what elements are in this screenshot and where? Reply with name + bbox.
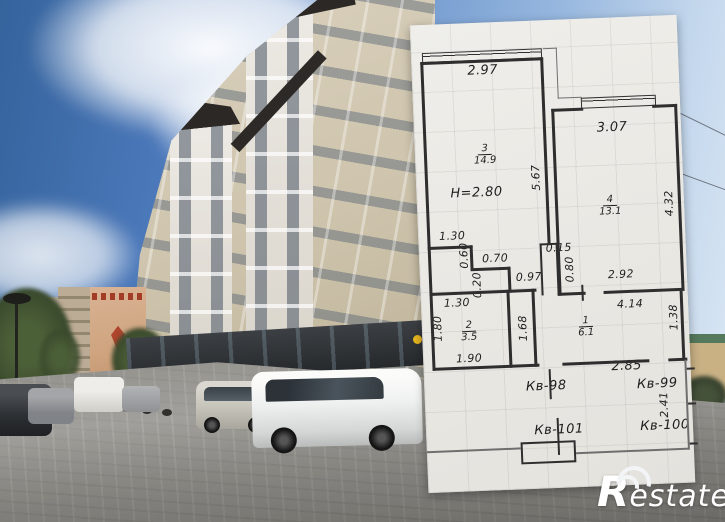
car-windows xyxy=(265,377,384,402)
apartment-label-98: Кв-98 xyxy=(526,378,567,395)
dim-lobby-height: 2.41 xyxy=(657,391,671,418)
room-number: 4 xyxy=(602,194,617,207)
dim-bath-bottom: 1.90 xyxy=(456,351,483,365)
room-label-bath: 2 3.5 xyxy=(460,313,477,345)
wall-segment xyxy=(531,289,537,367)
wall-segment xyxy=(551,108,583,112)
bollard xyxy=(162,409,172,416)
dim-room4-top: 3.07 xyxy=(596,119,627,135)
dim-room3-right: 5.67 xyxy=(529,164,543,191)
shop-sign xyxy=(413,335,422,344)
dim-room4-bottom: 2.92 xyxy=(608,267,635,281)
ceiling-height-label: H=2.80 xyxy=(450,184,503,201)
outline-segment xyxy=(684,360,690,450)
dim-room3-top: 2.97 xyxy=(467,63,498,79)
dim-closet-top: 0.97 xyxy=(516,270,543,284)
outline-segment xyxy=(556,48,559,99)
dim-hall-top: 4.14 xyxy=(617,297,644,311)
dim-niche-step: 0.20 xyxy=(470,272,484,299)
restate-watermark: Restate xyxy=(597,472,725,514)
dim-niche-width: 0.70 xyxy=(482,251,509,265)
parked-suv xyxy=(251,368,423,448)
outline-segment xyxy=(558,97,582,99)
wall-segment xyxy=(471,267,511,272)
room-area: 14.9 xyxy=(474,155,497,168)
outline-segment xyxy=(543,48,557,50)
neighbor-apartment-outline xyxy=(521,440,577,464)
wall-segment xyxy=(432,364,539,371)
room-label-bedroom: 4 13.1 xyxy=(598,187,621,219)
balcony-tower xyxy=(246,0,313,380)
wall-segment xyxy=(680,291,686,361)
parked-car xyxy=(28,388,74,424)
apartment-label-100: Кв-100 xyxy=(640,417,690,434)
wall-segment xyxy=(420,62,435,371)
floor-plan: 2.97 5.67 H=2.80 1.30 3.07 4.32 0.60 0.7… xyxy=(410,15,696,493)
room-number: 1 xyxy=(578,315,593,328)
door-axis-tick xyxy=(690,442,698,444)
room-label-hall: 1 6.1 xyxy=(577,308,594,340)
door-axis-tick xyxy=(581,285,584,301)
room-number: 2 xyxy=(461,320,476,333)
door-axis-tick xyxy=(688,402,696,404)
brand-text: Restate xyxy=(597,491,725,510)
wall-segment xyxy=(540,57,551,245)
dim-closet-height: 1.68 xyxy=(516,315,530,342)
mosaic-band xyxy=(92,293,144,300)
wall-segment xyxy=(604,288,685,294)
wall-segment xyxy=(506,290,512,368)
room-label-living: 3 14.9 xyxy=(473,136,496,168)
wall-segment xyxy=(470,245,474,270)
window-symbol xyxy=(581,95,656,109)
dim-room4-right: 4.32 xyxy=(662,190,676,217)
parked-car xyxy=(122,386,160,412)
apartment-label-99: Кв-99 xyxy=(637,376,678,393)
room-number: 3 xyxy=(477,143,492,156)
parked-van xyxy=(74,377,124,412)
dim-shaft-height: 0.80 xyxy=(563,256,577,283)
room-area: 3.5 xyxy=(461,332,477,345)
dim-bath-top: 1.30 xyxy=(444,296,471,310)
door-axis-tick xyxy=(687,367,695,369)
car-wheel xyxy=(204,417,220,433)
outline-segment xyxy=(576,448,689,455)
outline-segment xyxy=(427,447,521,453)
dim-hall-right: 1.38 xyxy=(667,304,681,331)
dim-room3-bottom: 1.30 xyxy=(439,229,466,243)
wall-segment xyxy=(540,243,544,295)
room-area: 6.1 xyxy=(578,327,594,340)
listing-image: 2.97 5.67 H=2.80 1.30 3.07 4.32 0.60 0.7… xyxy=(0,0,725,522)
street-lamp-head xyxy=(3,293,31,304)
room-area: 13.1 xyxy=(599,206,622,219)
